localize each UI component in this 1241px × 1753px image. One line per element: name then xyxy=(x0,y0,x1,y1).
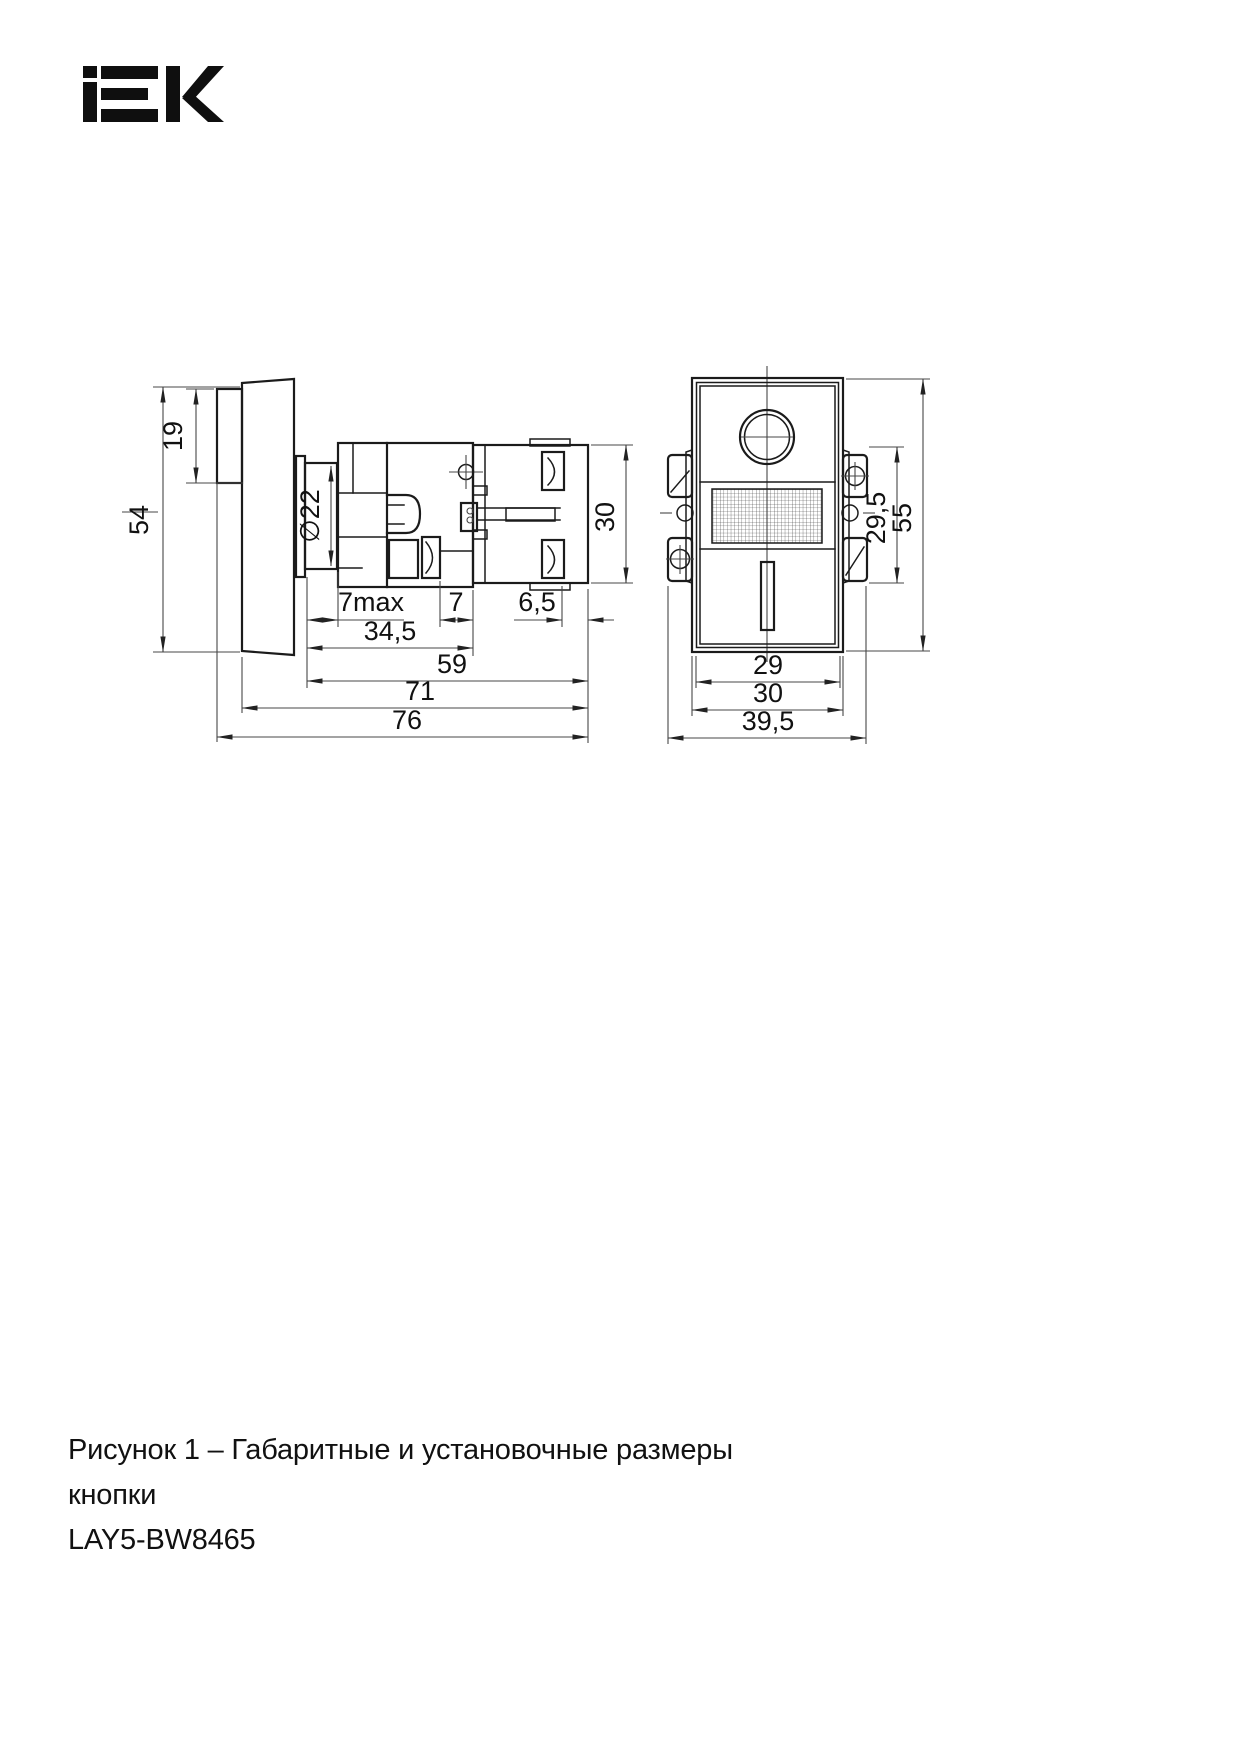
terminal-spring-top xyxy=(548,458,555,485)
side-view-dimensions: 54 19 ∅22 30 7max xyxy=(124,387,633,743)
dim-label-d22: ∅22 xyxy=(295,489,325,543)
dim-label-39-5: 39,5 xyxy=(742,706,795,736)
dim-label-76: 76 xyxy=(392,705,422,735)
figure-caption-line2: LAY5-BW8465 xyxy=(68,1518,828,1563)
front-view-dimensions: 29,5 55 29 30 39,5 xyxy=(668,379,930,744)
dim-label-29: 29 xyxy=(753,650,783,680)
rear-plate-outline xyxy=(217,389,242,483)
terminal-screw-slot xyxy=(506,508,555,521)
dim-label-30-front: 30 xyxy=(753,678,783,708)
housing-outline xyxy=(338,443,473,587)
dim-label-71: 71 xyxy=(405,676,435,706)
lens-hatch-area xyxy=(712,489,822,543)
side-nub-left xyxy=(677,505,693,521)
terminal-spring-bottom xyxy=(548,546,555,573)
plunger-outline xyxy=(387,495,420,533)
lower-block-outline xyxy=(389,540,418,578)
front-view xyxy=(660,366,875,662)
dim-label-30-side: 30 xyxy=(590,502,620,532)
dim-label-34-5: 34,5 xyxy=(364,616,417,646)
mushroom-cap-outline xyxy=(242,379,294,655)
terminal-clamp-top xyxy=(542,452,564,490)
clamp-spring xyxy=(426,542,433,573)
dim-label-7max: 7max xyxy=(338,587,405,617)
dim-label-54: 54 xyxy=(124,505,154,535)
figure-caption-line1: Рисунок 1 – Габаритные и установочные ра… xyxy=(68,1428,828,1518)
dim-label-7: 7 xyxy=(448,587,463,617)
datasheet-page: IEK xyxy=(0,0,1241,1753)
contact-block-outline xyxy=(473,445,588,583)
dim-label-6-5: 6,5 xyxy=(518,587,556,617)
dim-label-59: 59 xyxy=(437,649,467,679)
clamp-front xyxy=(422,537,440,578)
side-nub-right xyxy=(842,505,858,521)
terminal-clamp-bottom xyxy=(542,540,564,578)
dim-label-55: 55 xyxy=(887,503,917,533)
figure-caption: Рисунок 1 – Габаритные и установочные ра… xyxy=(68,1428,828,1563)
dim-label-19: 19 xyxy=(158,421,188,451)
